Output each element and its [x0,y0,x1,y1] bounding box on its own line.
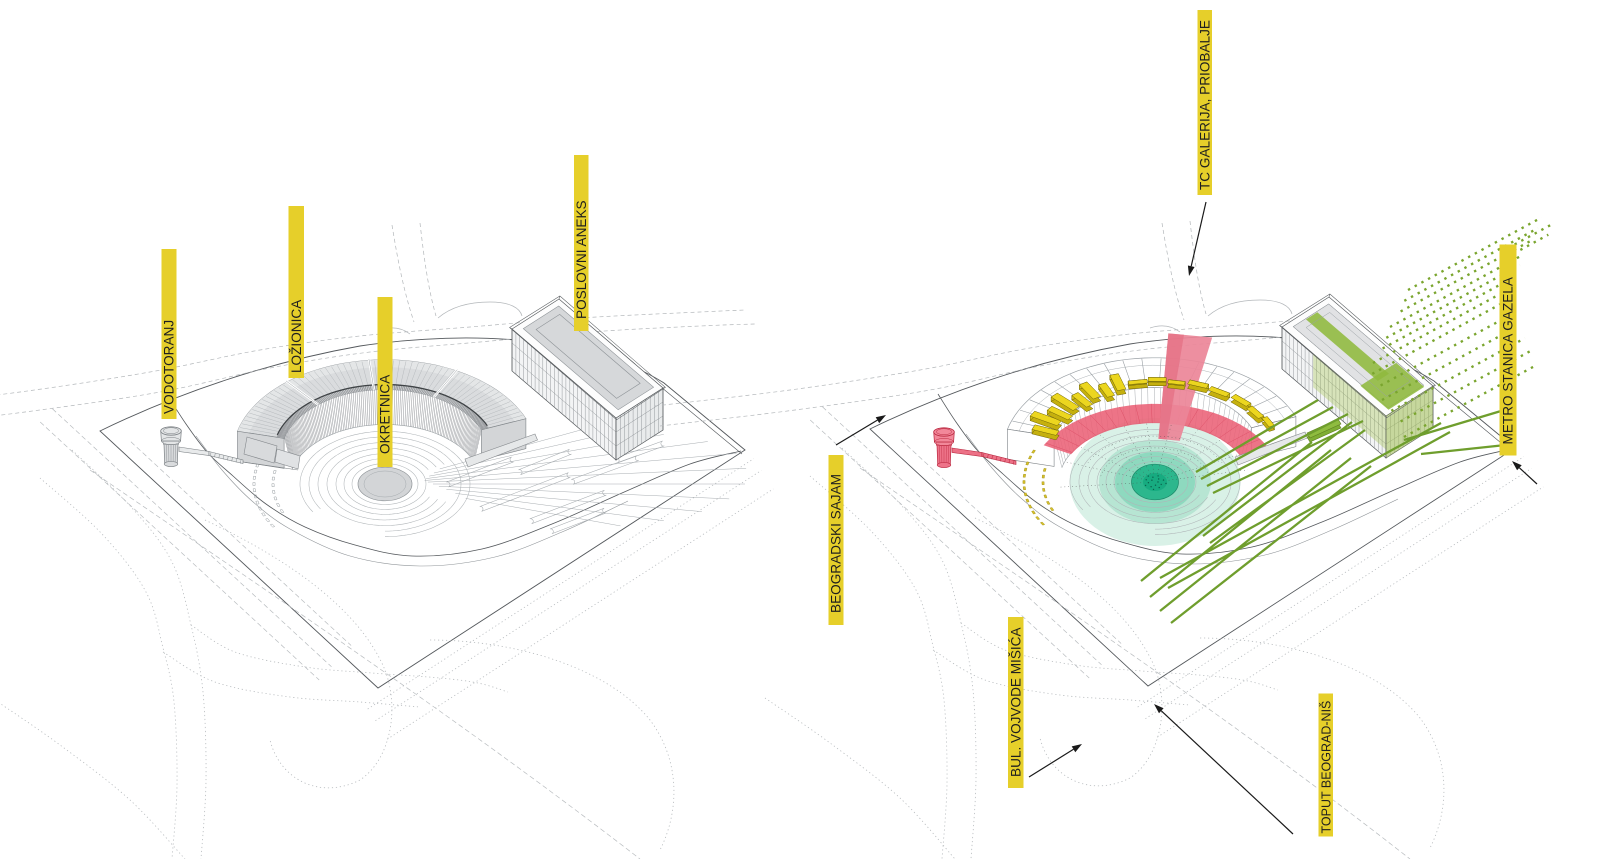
svg-text:VODOTORANJ: VODOTORANJ [162,320,177,414]
svg-text:OKRETNICA: OKRETNICA [378,374,393,454]
svg-text:TC GALERIJA, PRIOBALJE: TC GALERIJA, PRIOBALJE [1197,20,1212,190]
svg-text:POSLOVNI ANEKS: POSLOVNI ANEKS [574,200,589,319]
svg-text:TOPUT BEOGRAD-NIŠ: TOPUT BEOGRAD-NIŠ [1318,701,1333,834]
svg-text:LOŽIONICA: LOŽIONICA [289,299,304,373]
svg-text:BEOGRADSKI SAJAM: BEOGRADSKI SAJAM [829,474,844,613]
svg-text:METRO STANICA GAZELA: METRO STANICA GAZELA [1501,276,1516,444]
svg-text:BUL. VOJVODE MIŠIĆA: BUL. VOJVODE MIŠIĆA [1008,627,1023,777]
